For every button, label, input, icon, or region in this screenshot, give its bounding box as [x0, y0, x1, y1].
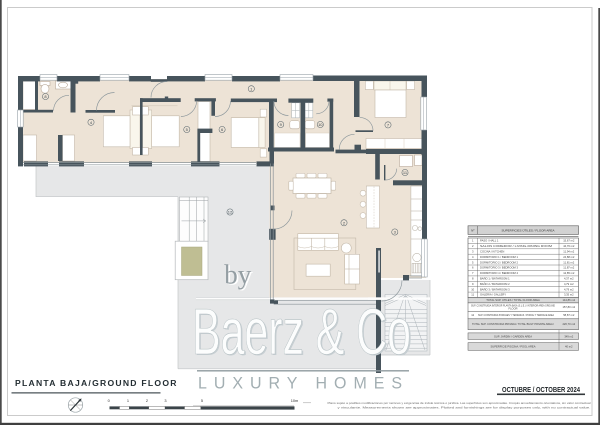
svg-text:4,79 m2: 4,79 m2 — [564, 282, 574, 286]
svg-text:OCTUBRE / OCTOBER 2024: OCTUBRE / OCTOBER 2024 — [502, 385, 581, 394]
svg-text:SUPERFICIE PISCINA / POOL AREA: SUPERFICIE PISCINA / POOL AREA — [490, 345, 535, 349]
svg-text:11: 11 — [471, 293, 474, 297]
svg-text:3,35 m2: 3,35 m2 — [564, 293, 574, 297]
svg-text:2: 2 — [146, 398, 148, 403]
svg-text:144,86 m2: 144,86 m2 — [562, 298, 575, 302]
svg-text:4,79 m2: 4,79 m2 — [564, 287, 574, 291]
svg-text:12: 12 — [228, 210, 233, 215]
svg-text:SUPERFICIES ÚTILES / FLOOR ARE: SUPERFICIES ÚTILES / FLOOR AREA — [501, 227, 554, 232]
svg-text:40 m2: 40 m2 — [565, 345, 573, 349]
svg-text:10m: 10m — [291, 398, 299, 403]
svg-text:5: 5 — [201, 398, 203, 403]
svg-text:DORMITORIO 3 / BEDROOM 3: DORMITORIO 3 / BEDROOM 3 — [480, 266, 519, 270]
svg-text:TOTAL SUP. CONSTRUIDA PRIVADA: TOTAL SUP. CONSTRUIDA PRIVADA / TOTAL BU… — [472, 322, 554, 326]
svg-text:226,70 m2: 226,70 m2 — [562, 322, 575, 326]
svg-text:349 m2: 349 m2 — [564, 334, 573, 338]
svg-text:GALERIA / GALLERY: GALERIA / GALLERY — [480, 293, 506, 297]
svg-text:Plano sujeto a posibles modifi: Plano sujeto a posibles modificaciones p… — [328, 401, 592, 405]
svg-text:15,67 m2: 15,67 m2 — [563, 239, 575, 243]
svg-text:y vinculante. Measurements sho: y vinculante. Measurements shown are app… — [338, 405, 591, 409]
svg-text:DORMITORIO 1 / BEDROOM 1: DORMITORIO 1 / BEDROOM 1 — [480, 255, 519, 259]
svg-text:DORMITORIO 4 / BEDROOM 4: DORMITORIO 4 / BEDROOM 4 — [480, 271, 519, 275]
svg-text:10: 10 — [318, 122, 323, 127]
svg-text:Baerz & Co: Baerz & Co — [192, 295, 411, 368]
svg-text:58,87 m2: 58,87 m2 — [563, 313, 575, 317]
svg-text:24,88 m2: 24,88 m2 — [563, 255, 575, 259]
svg-text:1: 1 — [127, 398, 129, 403]
svg-text:COCINA / KITCHEN: COCINA / KITCHEN — [480, 250, 504, 254]
svg-text:by: by — [224, 259, 252, 289]
svg-text:3: 3 — [164, 398, 166, 403]
svg-text:TOTAL SUP. UTILES / TOTAL FLOO: TOTAL SUP. UTILES / TOTAL FLOOR AREA — [486, 298, 540, 302]
svg-text:DORMITORIO 2 / BEDROOM 2: DORMITORIO 2 / BEDROOM 2 — [480, 260, 519, 264]
svg-text:11,87 m2: 11,87 m2 — [563, 266, 575, 270]
svg-text:11,94 m2: 11,94 m2 — [563, 250, 575, 254]
svg-text:12: 12 — [471, 313, 474, 317]
svg-text:FLOOR: FLOOR — [509, 307, 518, 311]
svg-text:SUP. CONSTRUIDA PORCHES Y TERR: SUP. CONSTRUIDA PORCHES Y TERRAZAS / POR… — [478, 313, 554, 317]
svg-text:SUP. JARDIN / GARDEN AREA: SUP. JARDIN / GARDEN AREA — [494, 334, 532, 338]
svg-text:PASO / HALL 1: PASO / HALL 1 — [480, 239, 499, 243]
svg-text:11,81 m2: 11,81 m2 — [563, 260, 575, 264]
svg-text:PLANTA BAJA/GROUND FLOOR: PLANTA BAJA/GROUND FLOOR — [15, 378, 178, 388]
svg-text:157,80 m2: 157,80 m2 — [562, 305, 575, 309]
svg-text:12,85 m2: 12,85 m2 — [563, 271, 575, 275]
svg-text:LUXURY HOMES: LUXURY HOMES — [198, 375, 409, 393]
svg-text:4,37 m2: 4,37 m2 — [564, 277, 574, 281]
svg-text:44,76 m2: 44,76 m2 — [563, 244, 575, 248]
svg-text:SALON COMEDOR / LIVING-DINING: SALON COMEDOR / LIVING-DINING ROOM — [480, 244, 553, 248]
svg-text:10: 10 — [471, 287, 474, 291]
